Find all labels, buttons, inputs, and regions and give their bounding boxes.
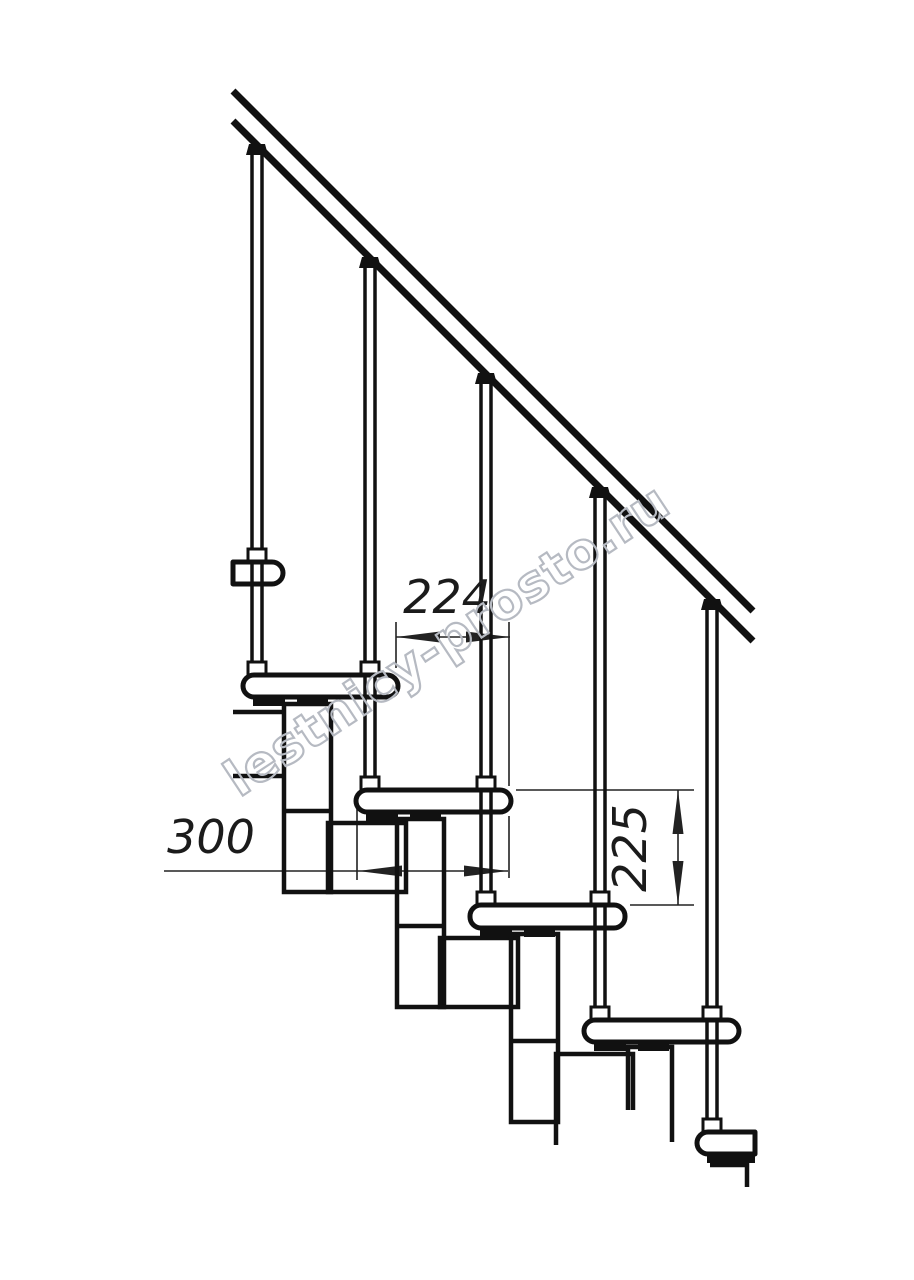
dim-300-label: 300 bbox=[167, 810, 255, 864]
module-connector-2 bbox=[284, 704, 331, 892]
tread-4 bbox=[470, 905, 625, 928]
dim-224-arrow-right bbox=[466, 632, 510, 643]
staircase-technical-drawing: 224 300 225 bbox=[0, 0, 914, 1280]
dim-224-label: 224 bbox=[403, 570, 491, 624]
dim-224-arrow-left bbox=[396, 632, 440, 643]
handrail-upper-edge bbox=[233, 91, 753, 611]
baluster-5-rail-cap-icon bbox=[701, 599, 723, 610]
tread-1 bbox=[233, 562, 283, 584]
tread-6 bbox=[697, 1132, 755, 1154]
baluster-1 bbox=[246, 144, 268, 675]
module-beam-2 bbox=[233, 712, 284, 776]
dim-225-arrow-down bbox=[673, 861, 684, 905]
handrail bbox=[233, 91, 753, 641]
baluster-3-rail-cap-icon bbox=[475, 373, 497, 384]
staircase-drawing-page: 224 300 225 lestnicy-prosto.ru bbox=[0, 0, 914, 1280]
treads bbox=[233, 562, 755, 1154]
baluster-2 bbox=[359, 257, 381, 790]
module-beam-3 bbox=[328, 823, 406, 892]
module-beam-5 bbox=[556, 1054, 633, 1145]
baluster-4 bbox=[589, 487, 611, 1020]
baluster-4-rail-cap-icon bbox=[589, 487, 611, 498]
baluster-2-rail-cap-icon bbox=[359, 257, 381, 268]
tread-3 bbox=[356, 790, 511, 812]
baluster-1-rail-cap-icon bbox=[246, 144, 268, 155]
baluster-5 bbox=[701, 599, 723, 1132]
dimension-labels: 224 300 225 bbox=[167, 570, 657, 892]
dim-300-arrow-right bbox=[464, 866, 508, 877]
dim-225-arrow-up bbox=[673, 790, 684, 834]
dim-225-label: 225 bbox=[603, 804, 657, 892]
module-beam-6 bbox=[710, 1165, 747, 1187]
module-beam-4 bbox=[440, 938, 518, 1007]
